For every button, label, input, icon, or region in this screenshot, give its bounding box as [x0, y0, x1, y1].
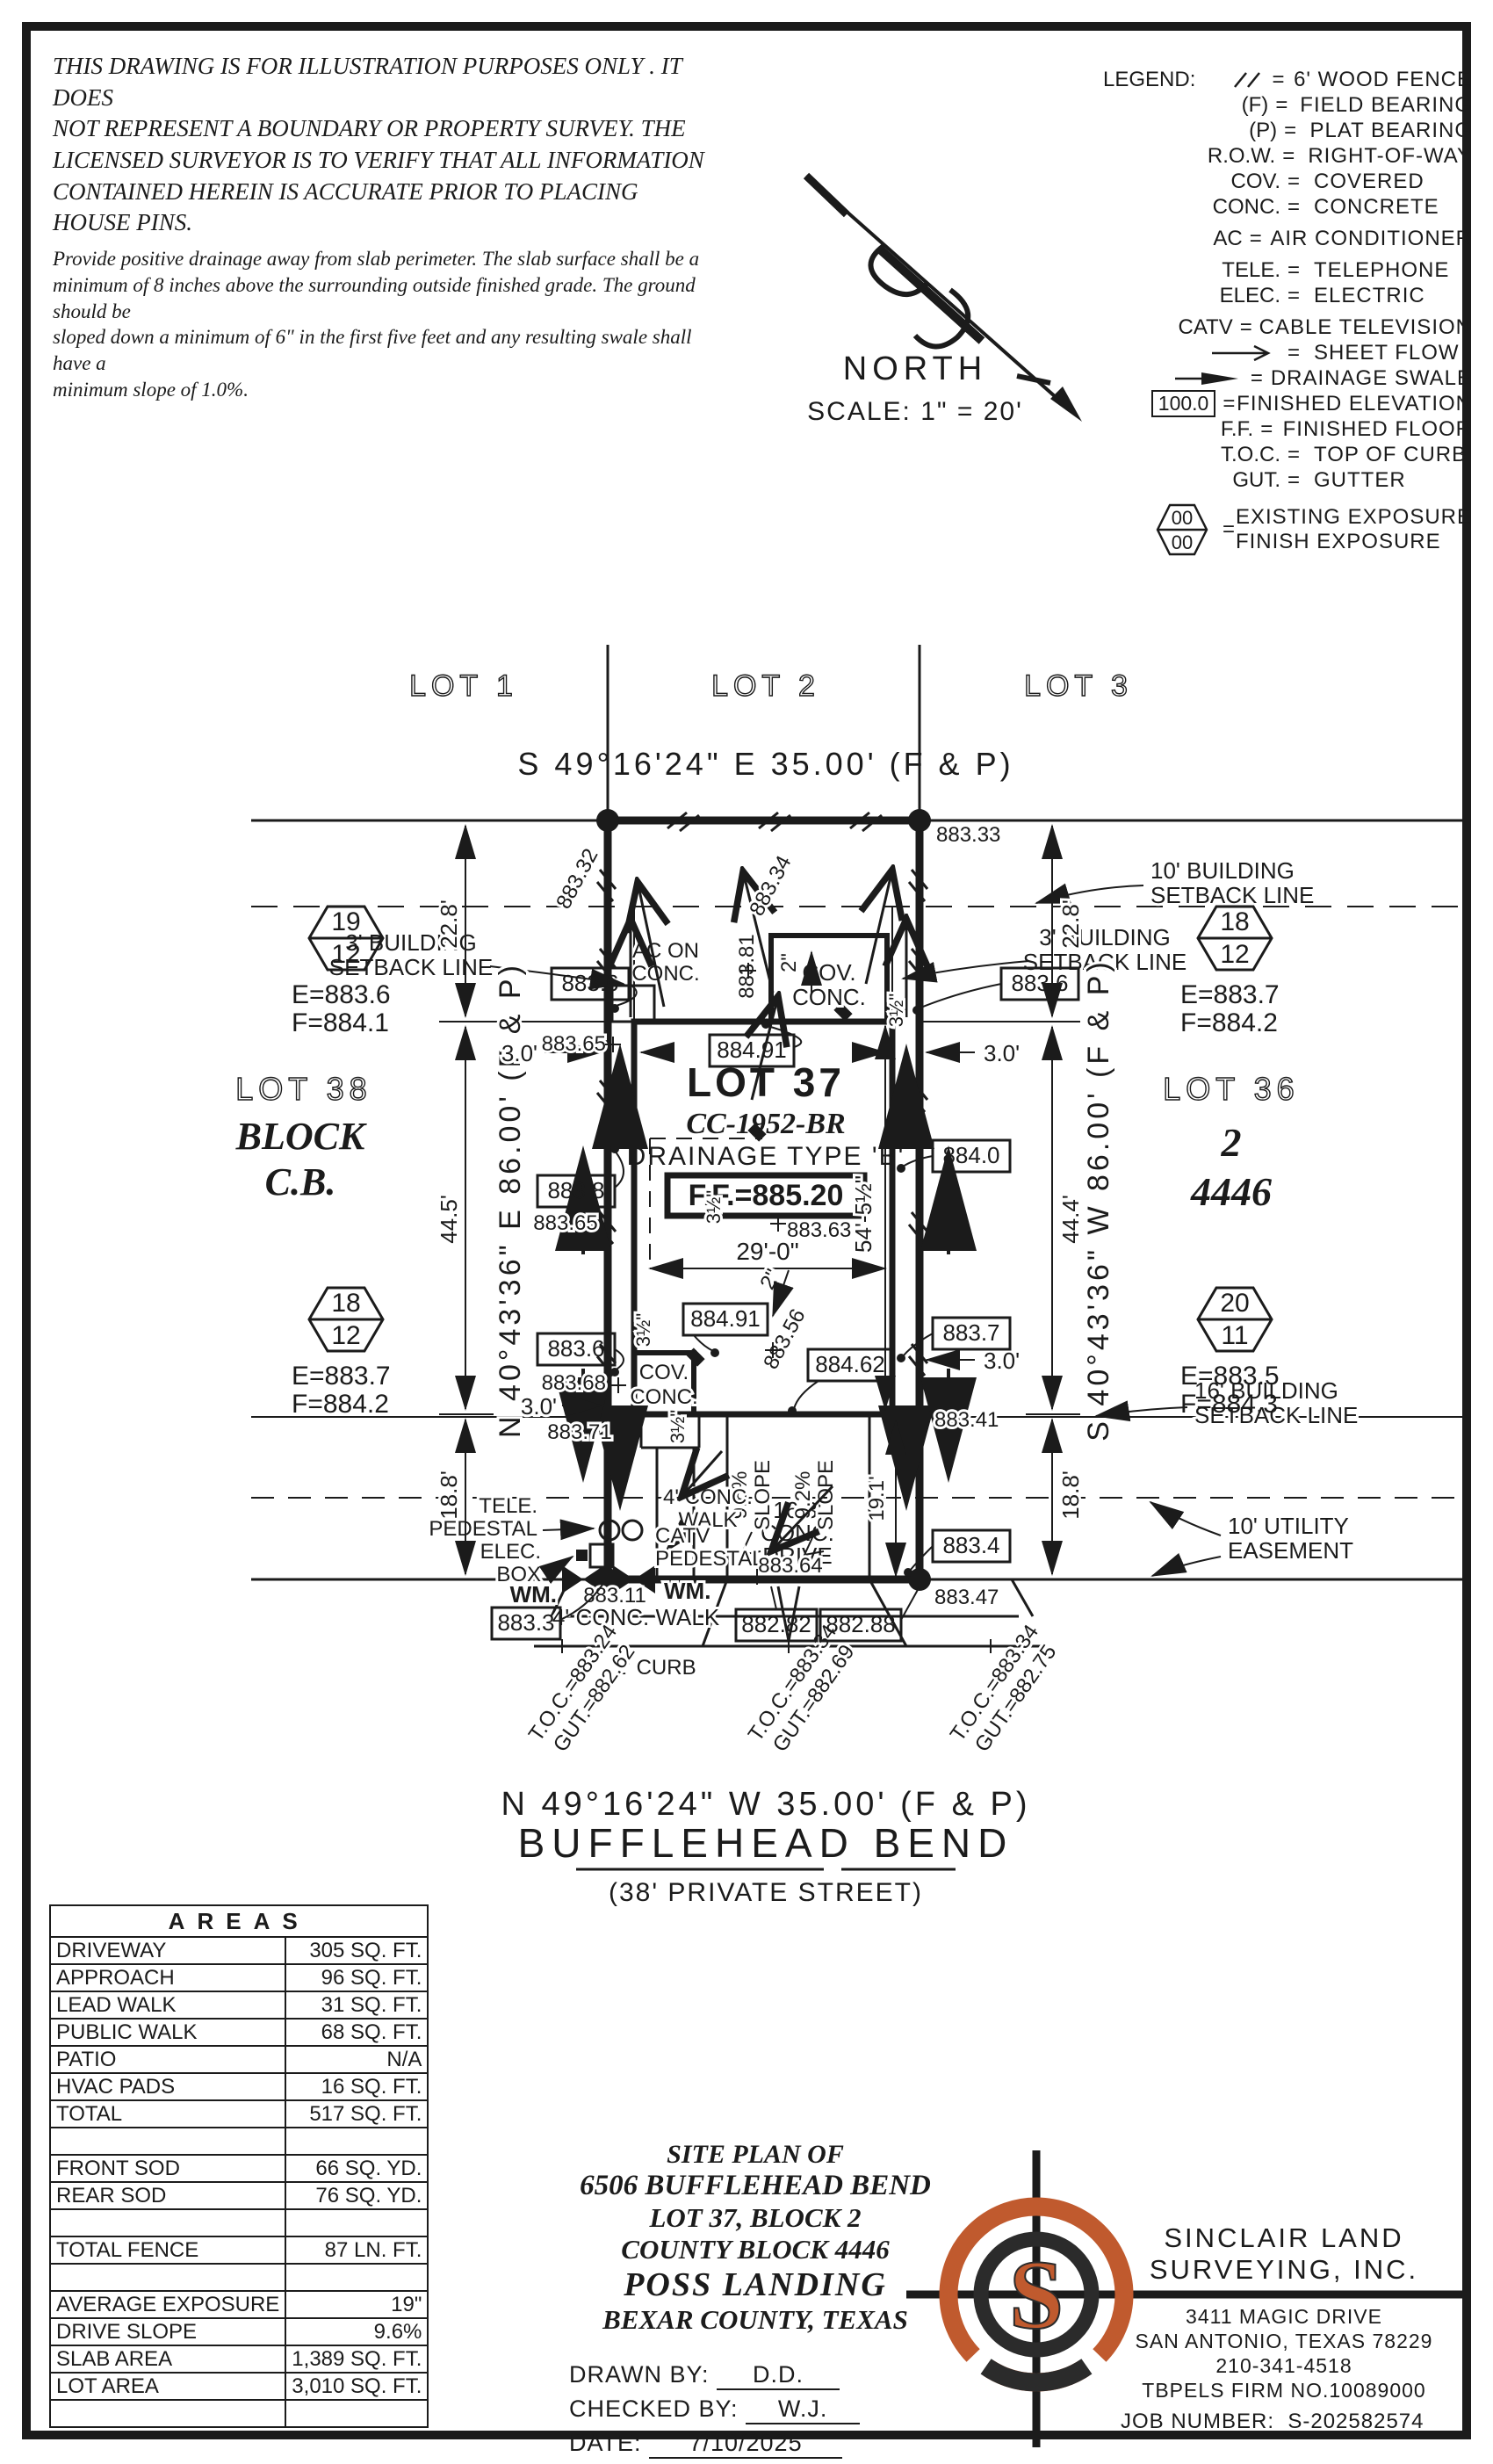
exposure-hex-icon: 0000: [1149, 498, 1215, 561]
disclaimer-line: CONTAINED HEREIN IS ACCURATE PRIOR TO PL…: [53, 177, 720, 239]
hex2-bottom: 12: [1220, 940, 1249, 969]
wm-label-left: WM.: [510, 1581, 557, 1608]
legend-desc: ELECTRIC: [1314, 284, 1472, 308]
title-block: SITE PLAN OF 6506 BUFFLEHEAD BEND LOT 37…: [474, 2140, 1036, 2336]
bearing-right: S 40°43'36" W 86.00' (F & P): [1082, 958, 1115, 1441]
dim-3half-c: 3½": [667, 1410, 689, 1443]
patio-label-l2: CONC.: [792, 984, 866, 1010]
lot1-label: LOT 1: [409, 669, 518, 703]
lot38-label: LOT 38: [235, 1071, 371, 1107]
slope2-pct: 9.2%: [791, 1471, 815, 1520]
drainage-note-line: Provide positive drainage away from slab…: [53, 246, 720, 272]
legend-desc: EXISTING EXPOSURE: [1236, 505, 1472, 530]
elec-label: ELEC.: [480, 1540, 541, 1564]
table-row: AVERAGE EXPOSURE19": [50, 2291, 428, 2318]
legend-desc: CABLE TELEVISION: [1259, 315, 1472, 340]
dim-19-1: 19.1': [865, 1476, 889, 1521]
disclaimer-line: THIS DRAWING IS FOR ILLUSTRATION PURPOSE…: [53, 51, 720, 113]
lot37-plan-no: CC-1952-BR: [686, 1108, 845, 1140]
hex2-top: 18: [1220, 907, 1249, 936]
table-row: PATION/A: [50, 2046, 428, 2073]
legend-eq: =: [1287, 258, 1314, 283]
title-line4: COUNTY BLOCK 4446: [474, 2234, 1036, 2265]
firm-name-l2: SURVEYING, INC.: [1108, 2254, 1460, 2286]
legend-desc: DRAINAGE SWALE: [1271, 366, 1472, 391]
date-label: DATE:: [569, 2430, 642, 2456]
checked-by-label: CHECKED BY:: [569, 2395, 739, 2422]
drainage-swale-icon: [1173, 369, 1244, 388]
lot36-label: LOT 36: [1163, 1071, 1299, 1107]
firm-name-l1: SINCLAIR LAND: [1108, 2222, 1460, 2254]
legend-eq: =: [1250, 227, 1271, 251]
legend-eq: =: [1287, 195, 1314, 220]
firm-address-l2: SAN ANTONIO, TEXAS 78229: [1108, 2329, 1460, 2353]
drainage-note-line: sloped down a minimum of 6" in the first…: [53, 324, 720, 377]
dim-3-0-topleft: 3.0': [501, 1040, 537, 1066]
legend-eq: =: [1260, 417, 1282, 442]
spot-883-64: 883.64: [758, 1554, 822, 1578]
table-row: [50, 2128, 428, 2155]
dim-3half-a: 3½": [885, 994, 907, 1027]
legend-eq: =: [1282, 144, 1308, 169]
legend-eq: =: [1223, 392, 1237, 416]
boxed-884-0: 884.0: [942, 1142, 999, 1168]
table-row: LOT AREA3,010 SQ. FT.: [50, 2373, 428, 2400]
legend-abbr: CONC.: [1194, 195, 1287, 220]
spot-883-63: 883.63: [787, 1218, 851, 1242]
street-name: BUFFLEHEAD BEND: [518, 1820, 1014, 1866]
lead-walk-label-l1: 4' CONC.: [663, 1485, 753, 1509]
legend-desc: AIR CONDITIONER: [1270, 227, 1472, 251]
legend-abbr: (F): [1188, 93, 1275, 118]
table-row: [50, 2209, 428, 2236]
catv-label-l2: PEDESTAL: [655, 1547, 764, 1571]
legend-eq: =: [1223, 517, 1236, 542]
table-row: PUBLIC WALK68 SQ. FT.: [50, 2019, 428, 2046]
dim-3half-d: 3½": [703, 1190, 725, 1224]
setback10-l2: SETBACK LINE: [1150, 882, 1314, 908]
legend-desc: SHEET FLOW: [1314, 341, 1472, 365]
spot-883-68: 883.68: [542, 1371, 606, 1395]
wood-fence-icon: [1230, 70, 1265, 90]
dim-44-5-left: 44.5': [436, 1195, 462, 1244]
title-line5: POSS LANDING: [474, 2265, 1036, 2304]
table-row: [50, 2264, 428, 2291]
legend-abbr: (P): [1193, 119, 1284, 143]
table-row: HVAC PADS16 SQ. FT.: [50, 2073, 428, 2100]
hex1-top: 19: [331, 907, 360, 936]
boxed-882-88: 882.88: [826, 1611, 896, 1637]
dim-54-5: 54'-5½": [850, 1175, 876, 1253]
bearing-top: S 49°16'24" E 35.00' (F & P): [517, 746, 1013, 782]
drainage-note-line: minimum of 8 inches above the surroundin…: [53, 272, 720, 325]
checked-by-value: W.J.: [746, 2395, 860, 2424]
lot38-block: BLOCK: [235, 1115, 367, 1158]
setback10-l1: 10' BUILDING: [1150, 857, 1295, 884]
table-row: APPROACH96 SQ. FT.: [50, 1964, 428, 1991]
legend-eq: =: [1275, 93, 1300, 118]
boxed-884-91-top: 884.91: [717, 1037, 787, 1063]
legend-desc: GUTTER: [1314, 468, 1472, 493]
boxed-883-6-tl: 883.6: [561, 970, 618, 996]
job-number-label: JOB NUMBER:: [1121, 2410, 1274, 2433]
table-row: SLAB AREA1,389 SQ. FT.: [50, 2345, 428, 2373]
legend-desc: RIGHT-OF-WAY: [1308, 144, 1472, 169]
pedestal-label: PEDESTAL: [429, 1517, 537, 1541]
table-row: [50, 2400, 428, 2427]
walk-drive-street: 16.3' CONC. DRIVE 9.6% SLOPE 9.2% SLOPE …: [501, 1414, 1062, 1907]
legend-eq: =: [1240, 315, 1259, 340]
site-plan-sheet: { "disclaimer": { "p1l1": "THIS DRAWING …: [0, 0, 1493, 2460]
spot-883-65b: 883.65: [533, 1211, 597, 1235]
hex3-finish: F=884.2: [292, 1390, 389, 1419]
legend-abbr: ELEC.: [1194, 284, 1287, 308]
legend: LEGEND:=6' WOOD FENCE (F)=FIELD BEARING …: [1103, 67, 1472, 567]
table-row: DRIVEWAY305 SQ. FT.: [50, 1937, 428, 1964]
hex3-top: 18: [331, 1289, 360, 1318]
hex3-bottom: 12: [331, 1321, 360, 1350]
boxed-882-82: 882.82: [741, 1611, 811, 1637]
finished-elevation-box: 100.0: [1151, 390, 1216, 417]
hex4-existing: E=883.5: [1180, 1362, 1280, 1391]
table-row: REAR SOD76 SQ. YD.: [50, 2182, 428, 2209]
hex3-existing: E=883.7: [292, 1362, 391, 1391]
legend-abbr: COV.: [1194, 170, 1287, 194]
tele-label: TELE.: [479, 1494, 537, 1518]
legend-desc: 6' WOOD FENCE: [1294, 68, 1472, 92]
ac-label-l2: CONC.: [631, 962, 699, 986]
hex4-finish: F=884.3: [1180, 1390, 1278, 1419]
drawn-by-value: D.D.: [717, 2361, 840, 2390]
spot-883-71: 883.71: [547, 1420, 611, 1444]
patio-label-l1: COV.: [802, 959, 855, 986]
firm-address-l1: 3411 MAGIC DRIVE: [1108, 2304, 1460, 2329]
spot-883-47: 883.47: [934, 1586, 999, 1609]
legend-desc: CONCRETE: [1314, 195, 1472, 220]
hex-marker-4: 20 11 E=883.5 F=884.3: [1180, 1288, 1280, 1419]
legend-abbr: F.F.: [1180, 417, 1260, 442]
ac-label-l1: AC ON: [632, 939, 699, 963]
legend-abbr: R.O.W.: [1192, 144, 1282, 169]
hex1-finish: F=884.1: [292, 1008, 389, 1037]
dim-18-8-left: 18.8': [436, 1470, 462, 1520]
legend-abbr: TELE.: [1194, 258, 1287, 283]
dim-3-0-topright: 3.0': [984, 1040, 1020, 1066]
legend-eq: =: [1287, 443, 1314, 467]
legend-abbr: AC: [1175, 227, 1250, 251]
hex4-top: 20: [1220, 1289, 1249, 1318]
wm-label-right: WM.: [664, 1578, 710, 1604]
adjacent-lots-top: LOT 1 LOT 2 LOT 3 S 49°16'24" E 35.00' (…: [409, 645, 1133, 817]
table-row: FRONT SOD66 SQ. YD.: [50, 2155, 428, 2182]
boxed-883-6-low: 883.6: [547, 1335, 604, 1362]
dim-3-0-botright: 3.0': [984, 1348, 1020, 1374]
legend-desc: TOP OF CURB: [1314, 443, 1472, 467]
legend-desc: FIELD BEARING: [1300, 93, 1472, 118]
table-row: DRIVE SLOPE9.6%: [50, 2318, 428, 2345]
boxed-884-62: 884.62: [815, 1351, 885, 1377]
firm-phone: 210-341-4518: [1108, 2353, 1460, 2378]
legend-eq: =: [1287, 468, 1314, 493]
lot3-label: LOT 3: [1024, 669, 1133, 703]
catv-label-l1: CATV: [655, 1524, 710, 1548]
hex2-existing: E=883.7: [1180, 980, 1280, 1009]
hex4-bottom: 11: [1221, 1321, 1248, 1350]
sheet-flow-icon: [1210, 343, 1280, 363]
dim-18-8-right: 18.8': [1057, 1470, 1084, 1520]
dim-22-8-left: 22.8': [436, 900, 462, 949]
lot2-label: LOT 2: [711, 669, 820, 703]
lot38-cb: C.B.: [265, 1160, 336, 1203]
spot-883-34: 883.34: [745, 852, 796, 920]
hex-marker-2: 18 12 E=883.7 F=884.2: [1180, 907, 1280, 1037]
legend-eq: =: [1272, 68, 1294, 92]
scale-label: SCALE: 1" = 20': [807, 397, 1023, 426]
legend-title: LEGEND:: [1103, 68, 1194, 92]
hex1-existing: E=883.6: [292, 980, 391, 1009]
legend-desc: PLAT BEARING: [1310, 119, 1473, 143]
boxed-883-6-tr: 883.6: [1011, 970, 1068, 996]
title-line3: LOT 37, BLOCK 2: [474, 2202, 1036, 2234]
svg-text:00: 00: [1172, 531, 1193, 553]
drainage-note-line: minimum slope of 1.0%.: [53, 377, 720, 403]
north-label: NORTH: [843, 350, 987, 387]
legend-desc: FINISH EXPOSURE: [1236, 530, 1472, 554]
dim-44-4-right: 44.4': [1057, 1195, 1084, 1244]
legend-abbr: CATV: [1170, 315, 1240, 340]
porch-label-l2: CONC.: [630, 1385, 697, 1409]
legend-desc: FINISHED FLOOR: [1283, 417, 1472, 442]
firm-info: SINCLAIR LAND SURVEYING, INC. 3411 MAGIC…: [1108, 2222, 1460, 2434]
spot-883-41: 883.41: [934, 1408, 999, 1432]
legend-desc: TELEPHONE: [1314, 258, 1472, 283]
job-number-value: S-202582574: [1287, 2410, 1424, 2433]
legend-eq: =: [1287, 284, 1314, 308]
dim-22-8-right: 22.8': [1057, 900, 1084, 949]
spot-883-65a: 883.65: [542, 1032, 606, 1056]
title-line6: BEXAR COUNTY, TEXAS: [474, 2304, 1036, 2336]
table-row: LEAD WALK31 SQ. FT.: [50, 1991, 428, 2019]
legend-eq: =: [1287, 170, 1314, 194]
legend-eq: =: [1287, 341, 1314, 365]
dim-3-0-botleft: 3.0': [521, 1393, 557, 1420]
spot-883-33: 883.33: [936, 823, 1000, 847]
spot-883-81: 883.81: [735, 934, 759, 998]
spot-883-32: 883.32: [552, 845, 602, 913]
slope1-word: SLOPE: [751, 1460, 775, 1530]
boxed-883-7: 883.7: [942, 1319, 999, 1346]
lot37-drainage: DRAINAGE TYPE 'B': [627, 1142, 905, 1171]
public-walk-label: 4' CONC. WALK: [552, 1604, 720, 1630]
utility-easement-l1: 10' UTILITY: [1228, 1513, 1349, 1539]
lot36-block-num: 2: [1221, 1120, 1242, 1165]
bearing-bottom: N 49°16'24" W 35.00' (F & P): [501, 1786, 1031, 1823]
table-row: TOTAL FENCE87 LN. FT.: [50, 2236, 428, 2264]
table-row: TOTAL517 SQ. FT.: [50, 2100, 428, 2128]
areas-title: AREAS: [50, 1905, 428, 1937]
hex2-finish: F=884.2: [1180, 1008, 1278, 1037]
boxed-883-3: 883.3: [497, 1609, 554, 1636]
hex1-bottom: 12: [331, 940, 360, 969]
drawn-by-label: DRAWN BY:: [569, 2361, 710, 2388]
date-value: 7/10/2025: [649, 2430, 842, 2459]
legend-eq: =: [1284, 119, 1309, 143]
dim-3half-b: 3½": [632, 1313, 654, 1347]
svg-text:00: 00: [1172, 507, 1193, 529]
boxed-884-91-mid: 884.91: [690, 1305, 761, 1332]
porch-label-l1: COV.: [639, 1361, 689, 1384]
hex-marker-3: 18 12 E=883.7 F=884.2: [292, 1288, 391, 1419]
legend-abbr: T.O.C.: [1194, 443, 1287, 467]
firm-registration: TBPELS FIRM NO.10089000: [1108, 2378, 1460, 2403]
dim-2in-patio: 2": [777, 953, 801, 972]
legend-desc: FINISHED ELEVATION: [1237, 392, 1472, 416]
disclaimer-line: LICENSED SURVEYOR IS TO VERIFY THAT ALL …: [53, 145, 720, 177]
boxed-883-4: 883.4: [942, 1532, 999, 1558]
areas-table: AREAS DRIVEWAY305 SQ. FT. APPROACH96 SQ.…: [49, 1904, 378, 2428]
boxed-883-8: 883.8: [547, 1177, 604, 1203]
title-line2: 6506 BUFFLEHEAD BEND: [474, 2170, 1036, 2202]
disclaimer-notes: THIS DRAWING IS FOR ILLUSTRATION PURPOSE…: [53, 51, 720, 403]
legend-abbr: GUT.: [1194, 468, 1287, 493]
signature-block: DRAWN BY: D.D. CHECKED BY: W.J. DATE: 7/…: [569, 2361, 956, 2464]
legend-desc: COVERED: [1314, 170, 1472, 194]
street-subtitle: (38' PRIVATE STREET): [609, 1878, 923, 1907]
lot36-county-block: 4446: [1190, 1169, 1272, 1214]
bearing-left: N 40°43'36" E 86.00' (F & P): [494, 962, 527, 1438]
title-line1: SITE PLAN OF: [474, 2140, 1036, 2170]
disclaimer-line: NOT REPRESENT A BOUNDARY OR PROPERTY SUR…: [53, 113, 720, 145]
legend-eq: =: [1251, 366, 1271, 391]
dim-2in-mid: 2": [755, 1265, 785, 1293]
utility-easement-l2: EASEMENT: [1228, 1537, 1353, 1564]
